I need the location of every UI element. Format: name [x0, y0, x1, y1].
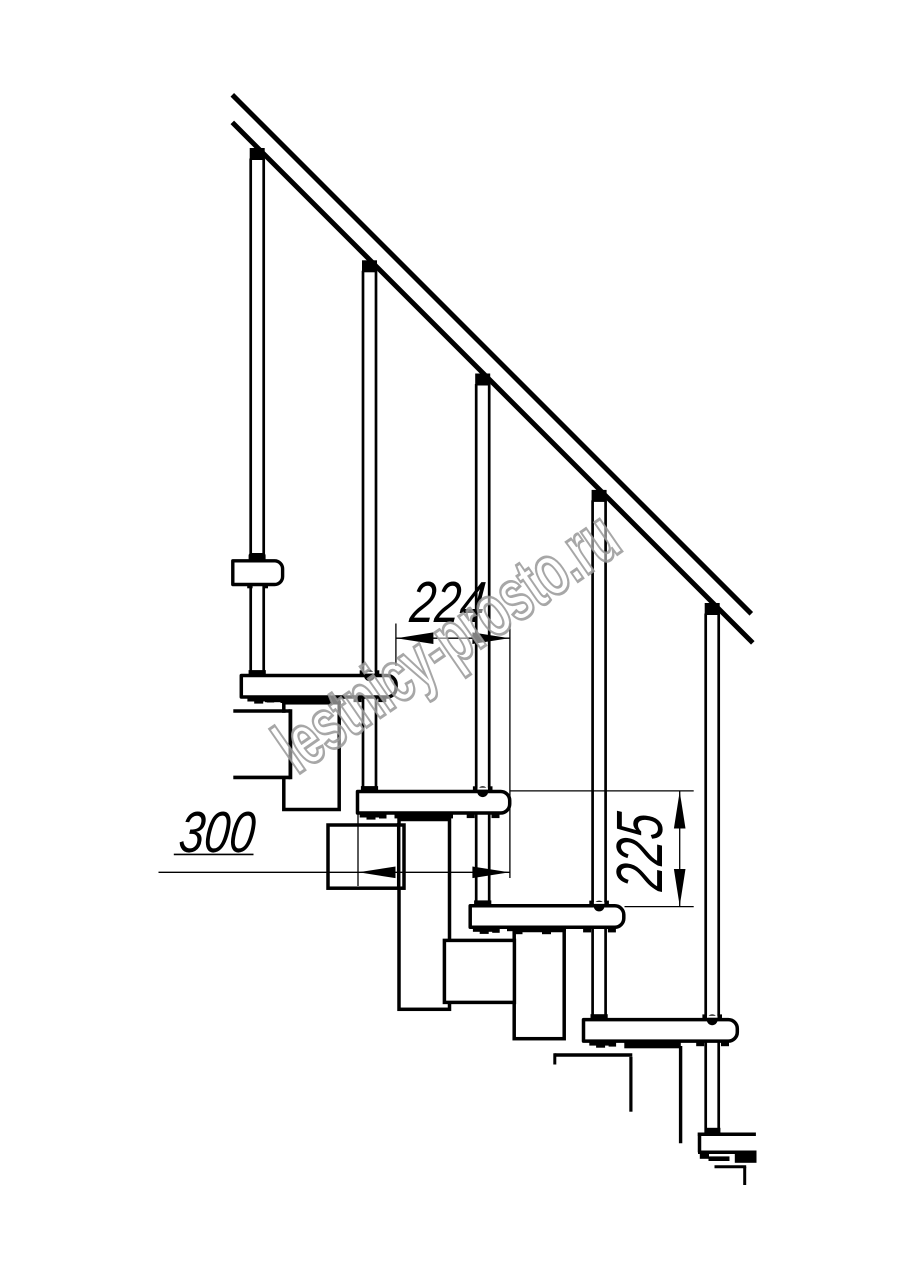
- svg-text:225: 225: [604, 809, 677, 894]
- svg-text:300: 300: [176, 801, 259, 865]
